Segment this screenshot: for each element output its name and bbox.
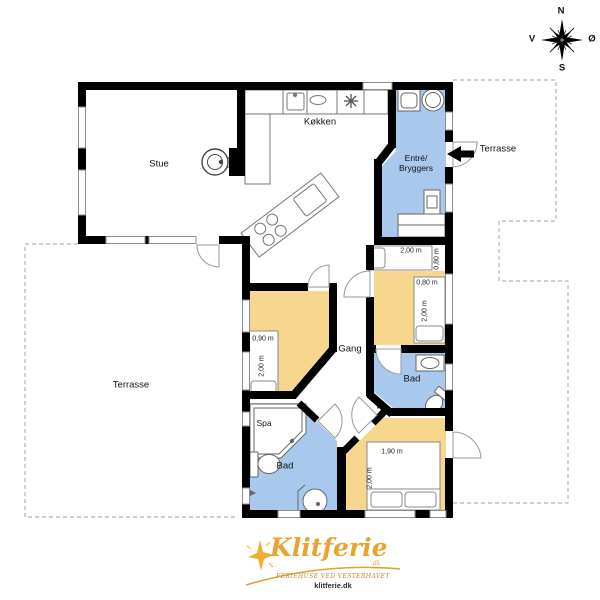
freezer-snowflake-icon (344, 94, 358, 108)
door-stue-terrace (197, 245, 219, 267)
room-label-bad-left: Bad (277, 461, 294, 471)
logo: Klitferie .dk FERIEHUSE VED VESTERHAVET … (238, 536, 428, 594)
measure-bedroom-left-bed-length: 2,00 m (259, 355, 266, 376)
bedroom-bottom-double-bed (367, 442, 440, 510)
room-label-entre: Entré/ Bryggers (399, 153, 433, 173)
room-label-entre-line2: Bryggers (399, 163, 433, 173)
floor-plan-drawing (0, 0, 600, 600)
room-label-entre-line1: Entré/ (399, 153, 433, 163)
kitchen-hood-icon (310, 96, 326, 105)
room-label-bad-right: Bad (404, 374, 421, 384)
compass-label-west: V (529, 34, 535, 45)
measure-bedroom-right-bed-width: 0,80 m (416, 280, 437, 287)
compass-rose-icon (541, 19, 583, 61)
wall-kitchen-divider (237, 90, 245, 148)
measure-bedroom-right-bed-length: 2,00 m (422, 300, 429, 321)
measure-bedroom-bottom-bed-length: 2,00 m (367, 467, 374, 488)
bedroom-right-bed (414, 277, 445, 343)
compass-label-east: Ø (588, 34, 595, 45)
wall-stove-stub (229, 148, 245, 176)
logo-tagline: FERIEHUSE VED VESTERHAVET (276, 573, 390, 580)
logo-brand-suffix: .dk (371, 560, 380, 567)
logo-brand: Klitferie (270, 533, 388, 562)
kitchen-faucet (293, 93, 296, 96)
room-label-spa: Spa (256, 419, 271, 428)
measure-alcove-bed-width: 2,00 m (400, 248, 421, 255)
compass-label-south: S (559, 63, 565, 74)
room-label-gang: Gang (338, 344, 361, 354)
measure-bedroom-left-bed-width: 0,90 m (252, 336, 273, 343)
floor-plan-page: Stue Køkken Entré/ Bryggers Terrasse Ter… (0, 0, 600, 600)
measure-bedroom-bottom-bed-width: 1,90 m (381, 449, 402, 456)
door-bedroom-terrace (453, 432, 481, 458)
room-label-kokken: Køkken (304, 117, 336, 127)
room-label-terrasse-left: Terrasse (113, 380, 149, 390)
logo-website: klitferie.dk (314, 581, 352, 590)
kitchen-counter-left (245, 114, 270, 184)
measure-alcove-bed-depth: 0,80 m (434, 248, 441, 269)
compass-label-north: N (558, 6, 565, 17)
room-label-stue: Stue (149, 159, 169, 169)
room-label-terrasse-right: Terrasse (480, 144, 516, 154)
